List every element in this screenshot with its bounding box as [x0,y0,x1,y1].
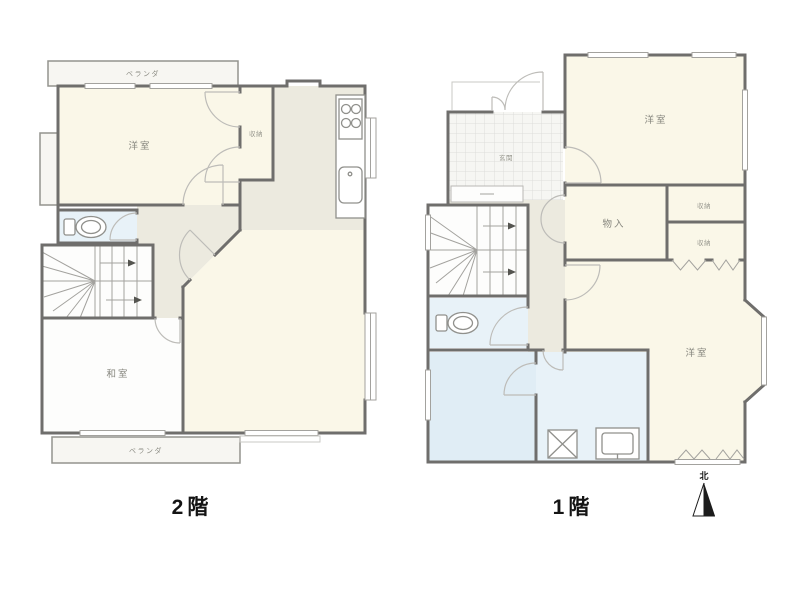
living-room-2f [183,230,365,433]
floor2-title: 2階 [172,496,213,519]
floorplan-drawing: ベランダ 洋室 収納 和室 ベランダ 2階 [0,0,800,599]
western-room-2f-label: 洋室 [128,140,151,152]
closet-1f-bottom-label: 収納 [697,238,711,247]
north-label: 北 [699,470,708,481]
floorplan-2f: ベランダ 洋室 収納 和室 ベランダ 2階 [40,61,376,519]
balcony-bottom-label: ベランダ [129,446,163,455]
bay-window [762,317,767,385]
north-arrow-icon: 北 [693,470,715,516]
porch-step-lines [452,82,540,110]
toilet-icon-2f [64,217,106,238]
japanese-room-label: 和室 [106,368,129,380]
western-room-1f-north-label: 洋室 [644,114,667,126]
floorplan-page: ベランダ 洋室 収納 和室 ベランダ 2階 [0,0,800,599]
balcony-top-label: ベランダ [126,69,160,78]
closet-1f-top-label: 収納 [697,201,711,210]
kitchen-counter [336,95,365,218]
storage-label: 物入 [602,218,625,230]
bathroom-1f [428,352,536,462]
toilet-icon-1f [436,313,478,334]
entrance-label: 玄関 [499,153,513,162]
western-room-1f-south-label: 洋室 [685,347,708,359]
floor1-title: 1階 [553,496,594,519]
washbasin-icon [596,428,639,459]
washing-machine-icon [548,430,577,458]
side-window-box-2f [40,133,58,205]
closet-2f-label: 収納 [249,129,263,138]
floorplan-1f: 洋室 物入 収納 収納 玄関 洋室 1階 [426,53,767,520]
